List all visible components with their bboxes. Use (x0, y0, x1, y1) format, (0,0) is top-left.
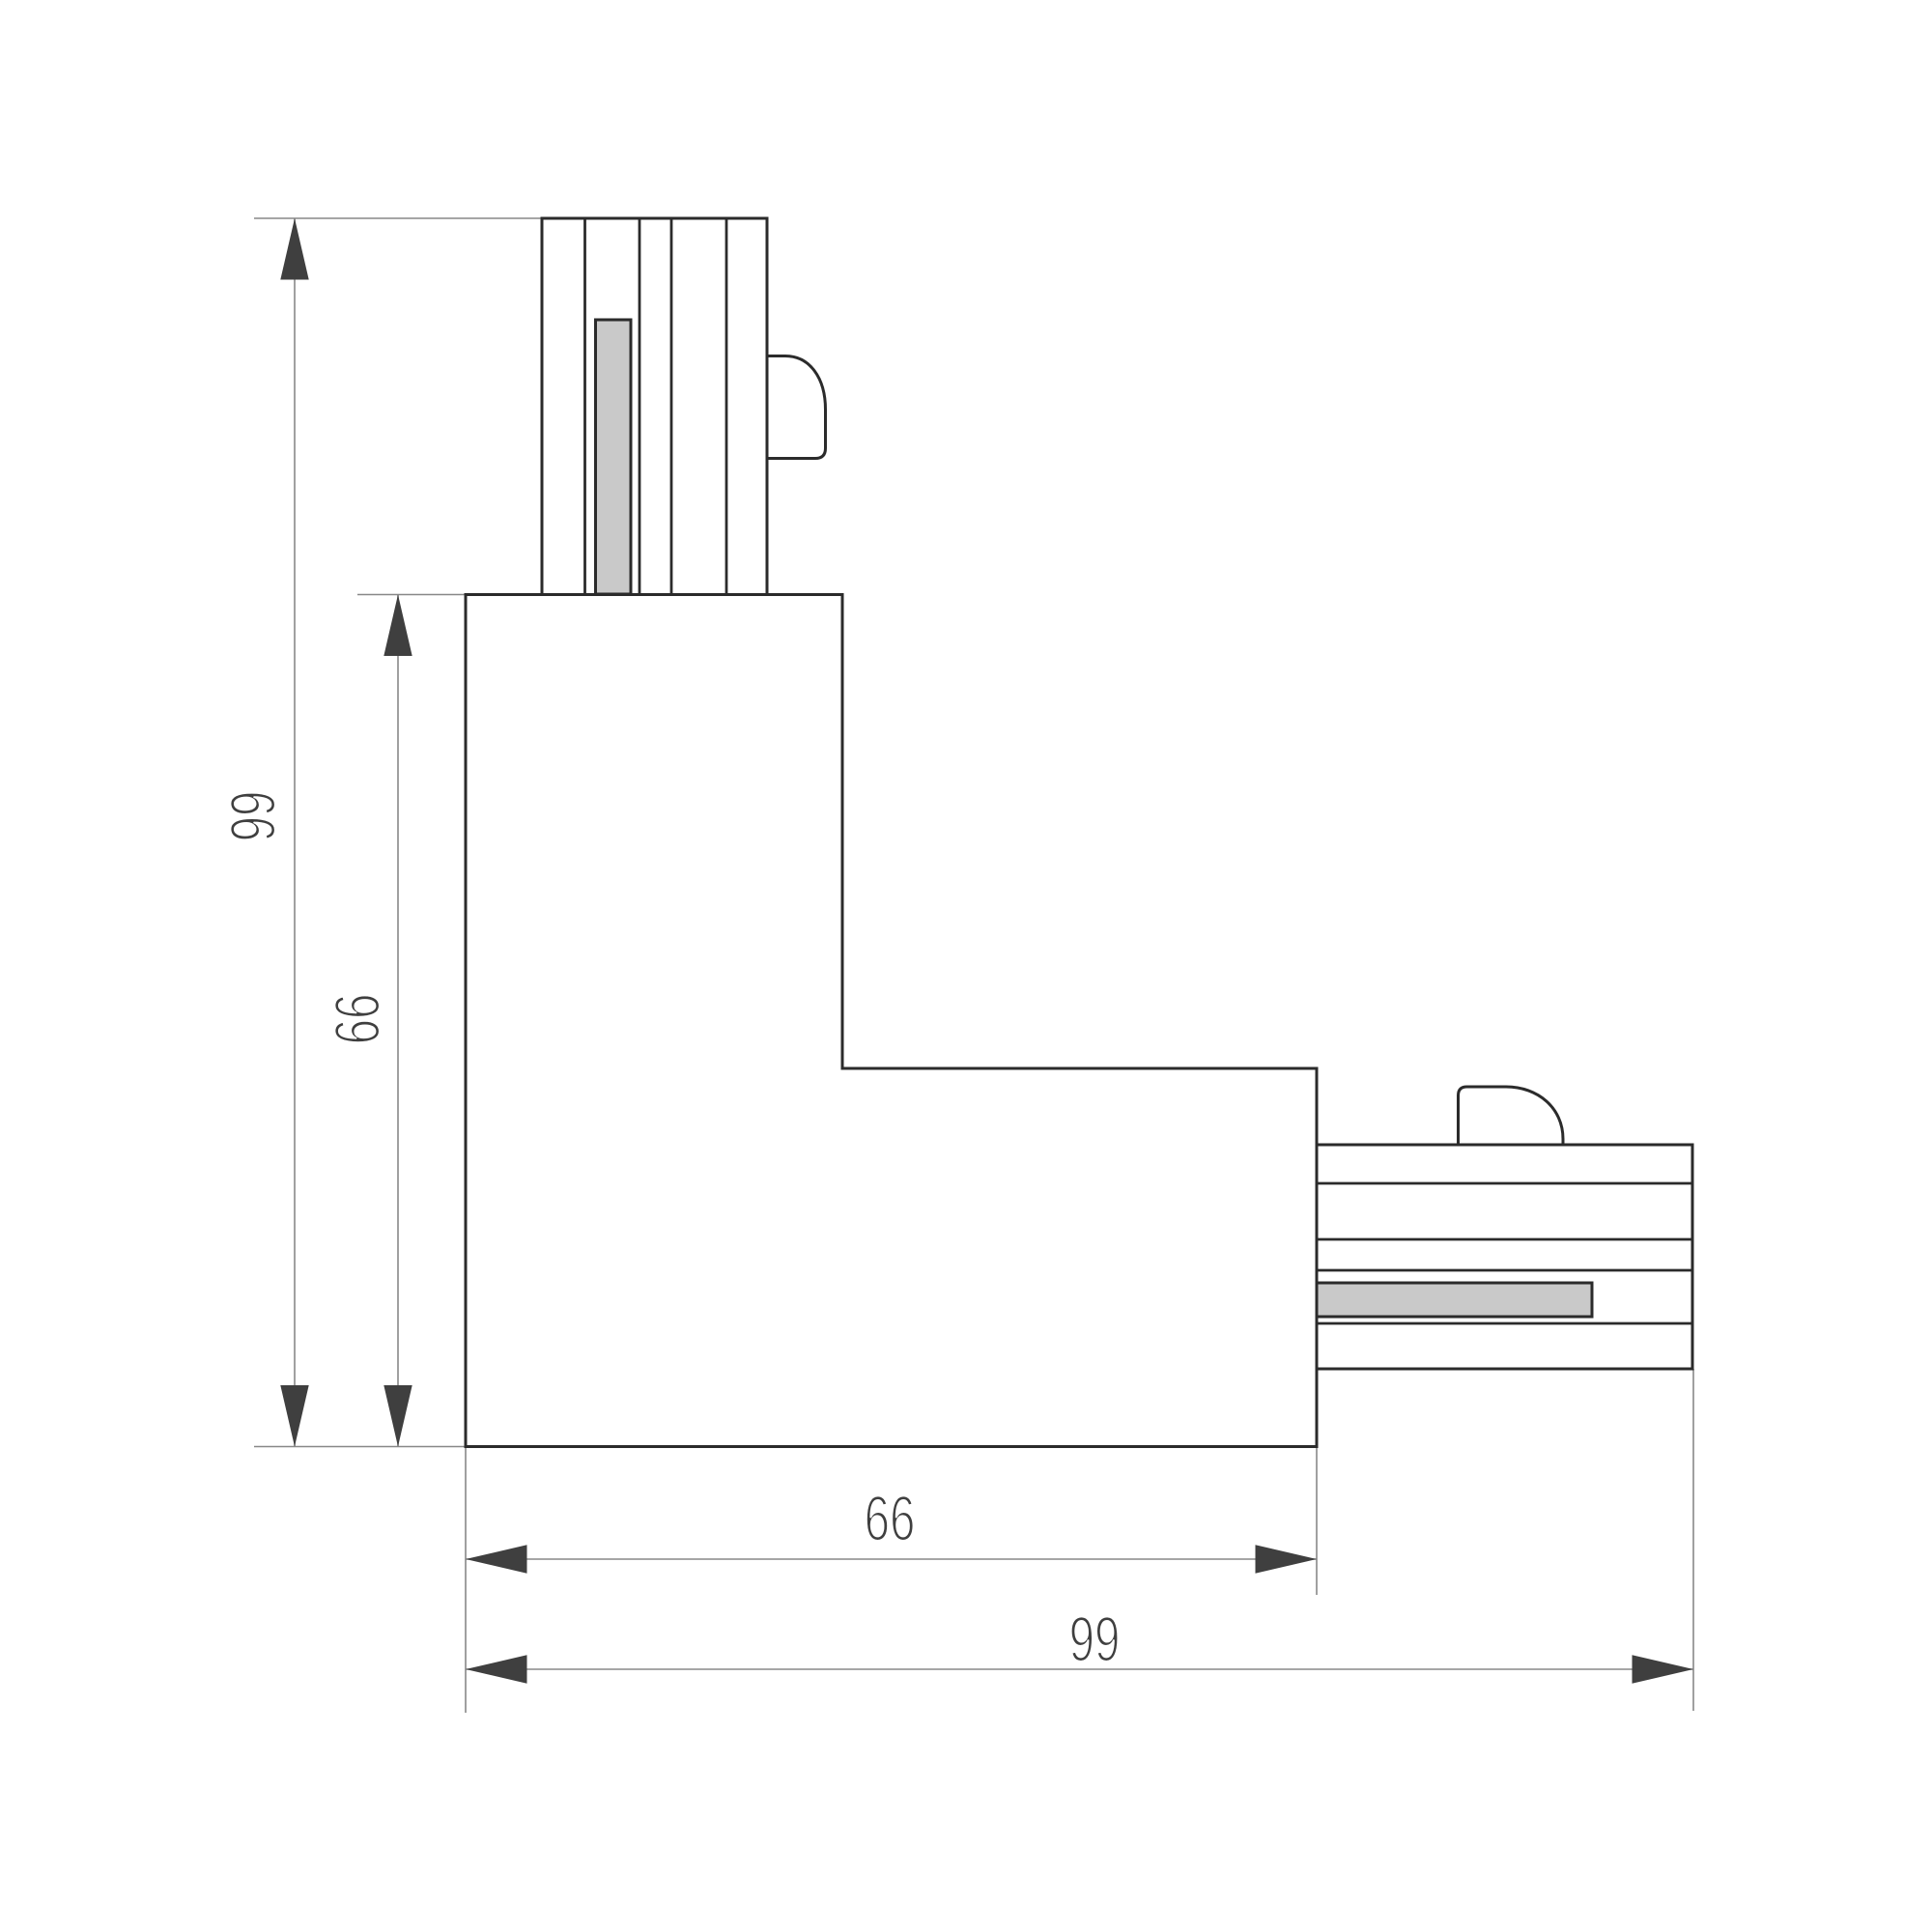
svg-text:99: 99 (218, 791, 289, 842)
svg-text:66: 66 (865, 1484, 916, 1554)
svg-text:99: 99 (1069, 1605, 1121, 1675)
svg-text:66: 66 (323, 994, 393, 1045)
